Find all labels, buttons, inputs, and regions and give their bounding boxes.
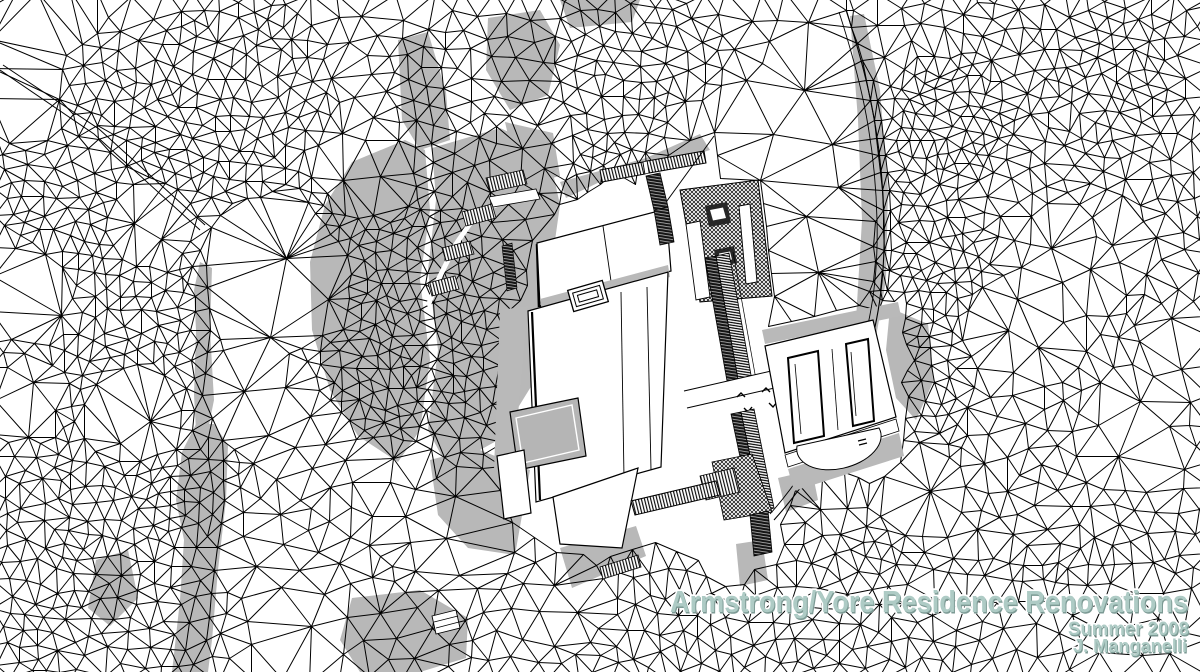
svg-text:J. Manganelli: J. Manganelli [1073, 635, 1187, 656]
svg-text:Armstrong/Yore Residence Renov: Armstrong/Yore Residence Renovations [670, 584, 1188, 619]
